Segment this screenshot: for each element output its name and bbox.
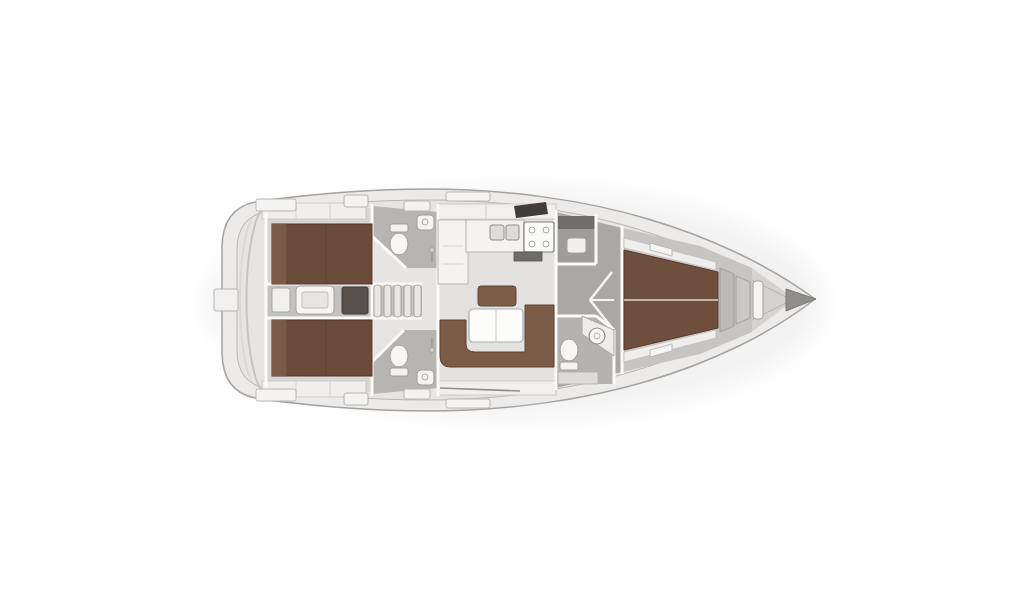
berth-port-aft-pillow	[272, 320, 286, 376]
deck-hatch	[344, 195, 368, 207]
galley-oven-front	[514, 252, 542, 261]
mid-cabinet-dark-band	[558, 216, 596, 229]
deck-hatch	[404, 201, 430, 211]
forward-head-shelf	[558, 372, 598, 384]
bow-hatch	[753, 281, 763, 319]
berth-port-aft	[272, 320, 372, 376]
galley-sink-1	[490, 225, 504, 240]
toilet-tank-port	[390, 368, 408, 376]
toilet-starboard	[390, 233, 408, 255]
deck-hatch	[256, 389, 296, 401]
sink-port	[417, 370, 434, 385]
engine-locker	[272, 288, 290, 312]
forward-head-toilet-tank	[560, 362, 578, 370]
galley-counter-side	[438, 220, 468, 284]
deck-skylight	[446, 399, 490, 408]
toilet-port	[390, 345, 408, 367]
transom-swim-step	[214, 289, 238, 311]
engine-box-inner	[302, 292, 328, 308]
toilet-tank-starboard	[390, 224, 408, 232]
deck-hatch	[256, 199, 296, 211]
companionway-step	[414, 285, 421, 317]
forward-head-sink	[589, 328, 605, 344]
companionway-step	[404, 285, 411, 317]
galley-sink-2	[506, 225, 519, 240]
deck-hatch	[404, 389, 430, 399]
galley-stove	[524, 222, 554, 252]
sink-starboard	[417, 215, 434, 230]
forward-head-toilet	[560, 339, 578, 361]
mid-cabinet-fixture	[567, 238, 586, 253]
companionway-step	[394, 285, 401, 317]
engine-block	[342, 287, 368, 314]
deck-hatch	[344, 393, 368, 405]
salon-bench	[478, 286, 516, 306]
berth-starboard-aft-pillow	[272, 224, 286, 284]
berth-starboard-aft	[272, 224, 372, 284]
yacht-deck-plan-page	[0, 0, 1024, 600]
shower-head-starboard	[430, 248, 435, 253]
companionway-step	[374, 285, 381, 317]
companionway-step	[384, 285, 391, 317]
yacht-deck-plan-diagram	[0, 0, 1024, 600]
shower-head-port	[430, 348, 435, 353]
forward-berth-step-1	[720, 268, 734, 332]
forward-berth-step-2	[736, 276, 750, 324]
deck-skylight	[446, 192, 490, 201]
